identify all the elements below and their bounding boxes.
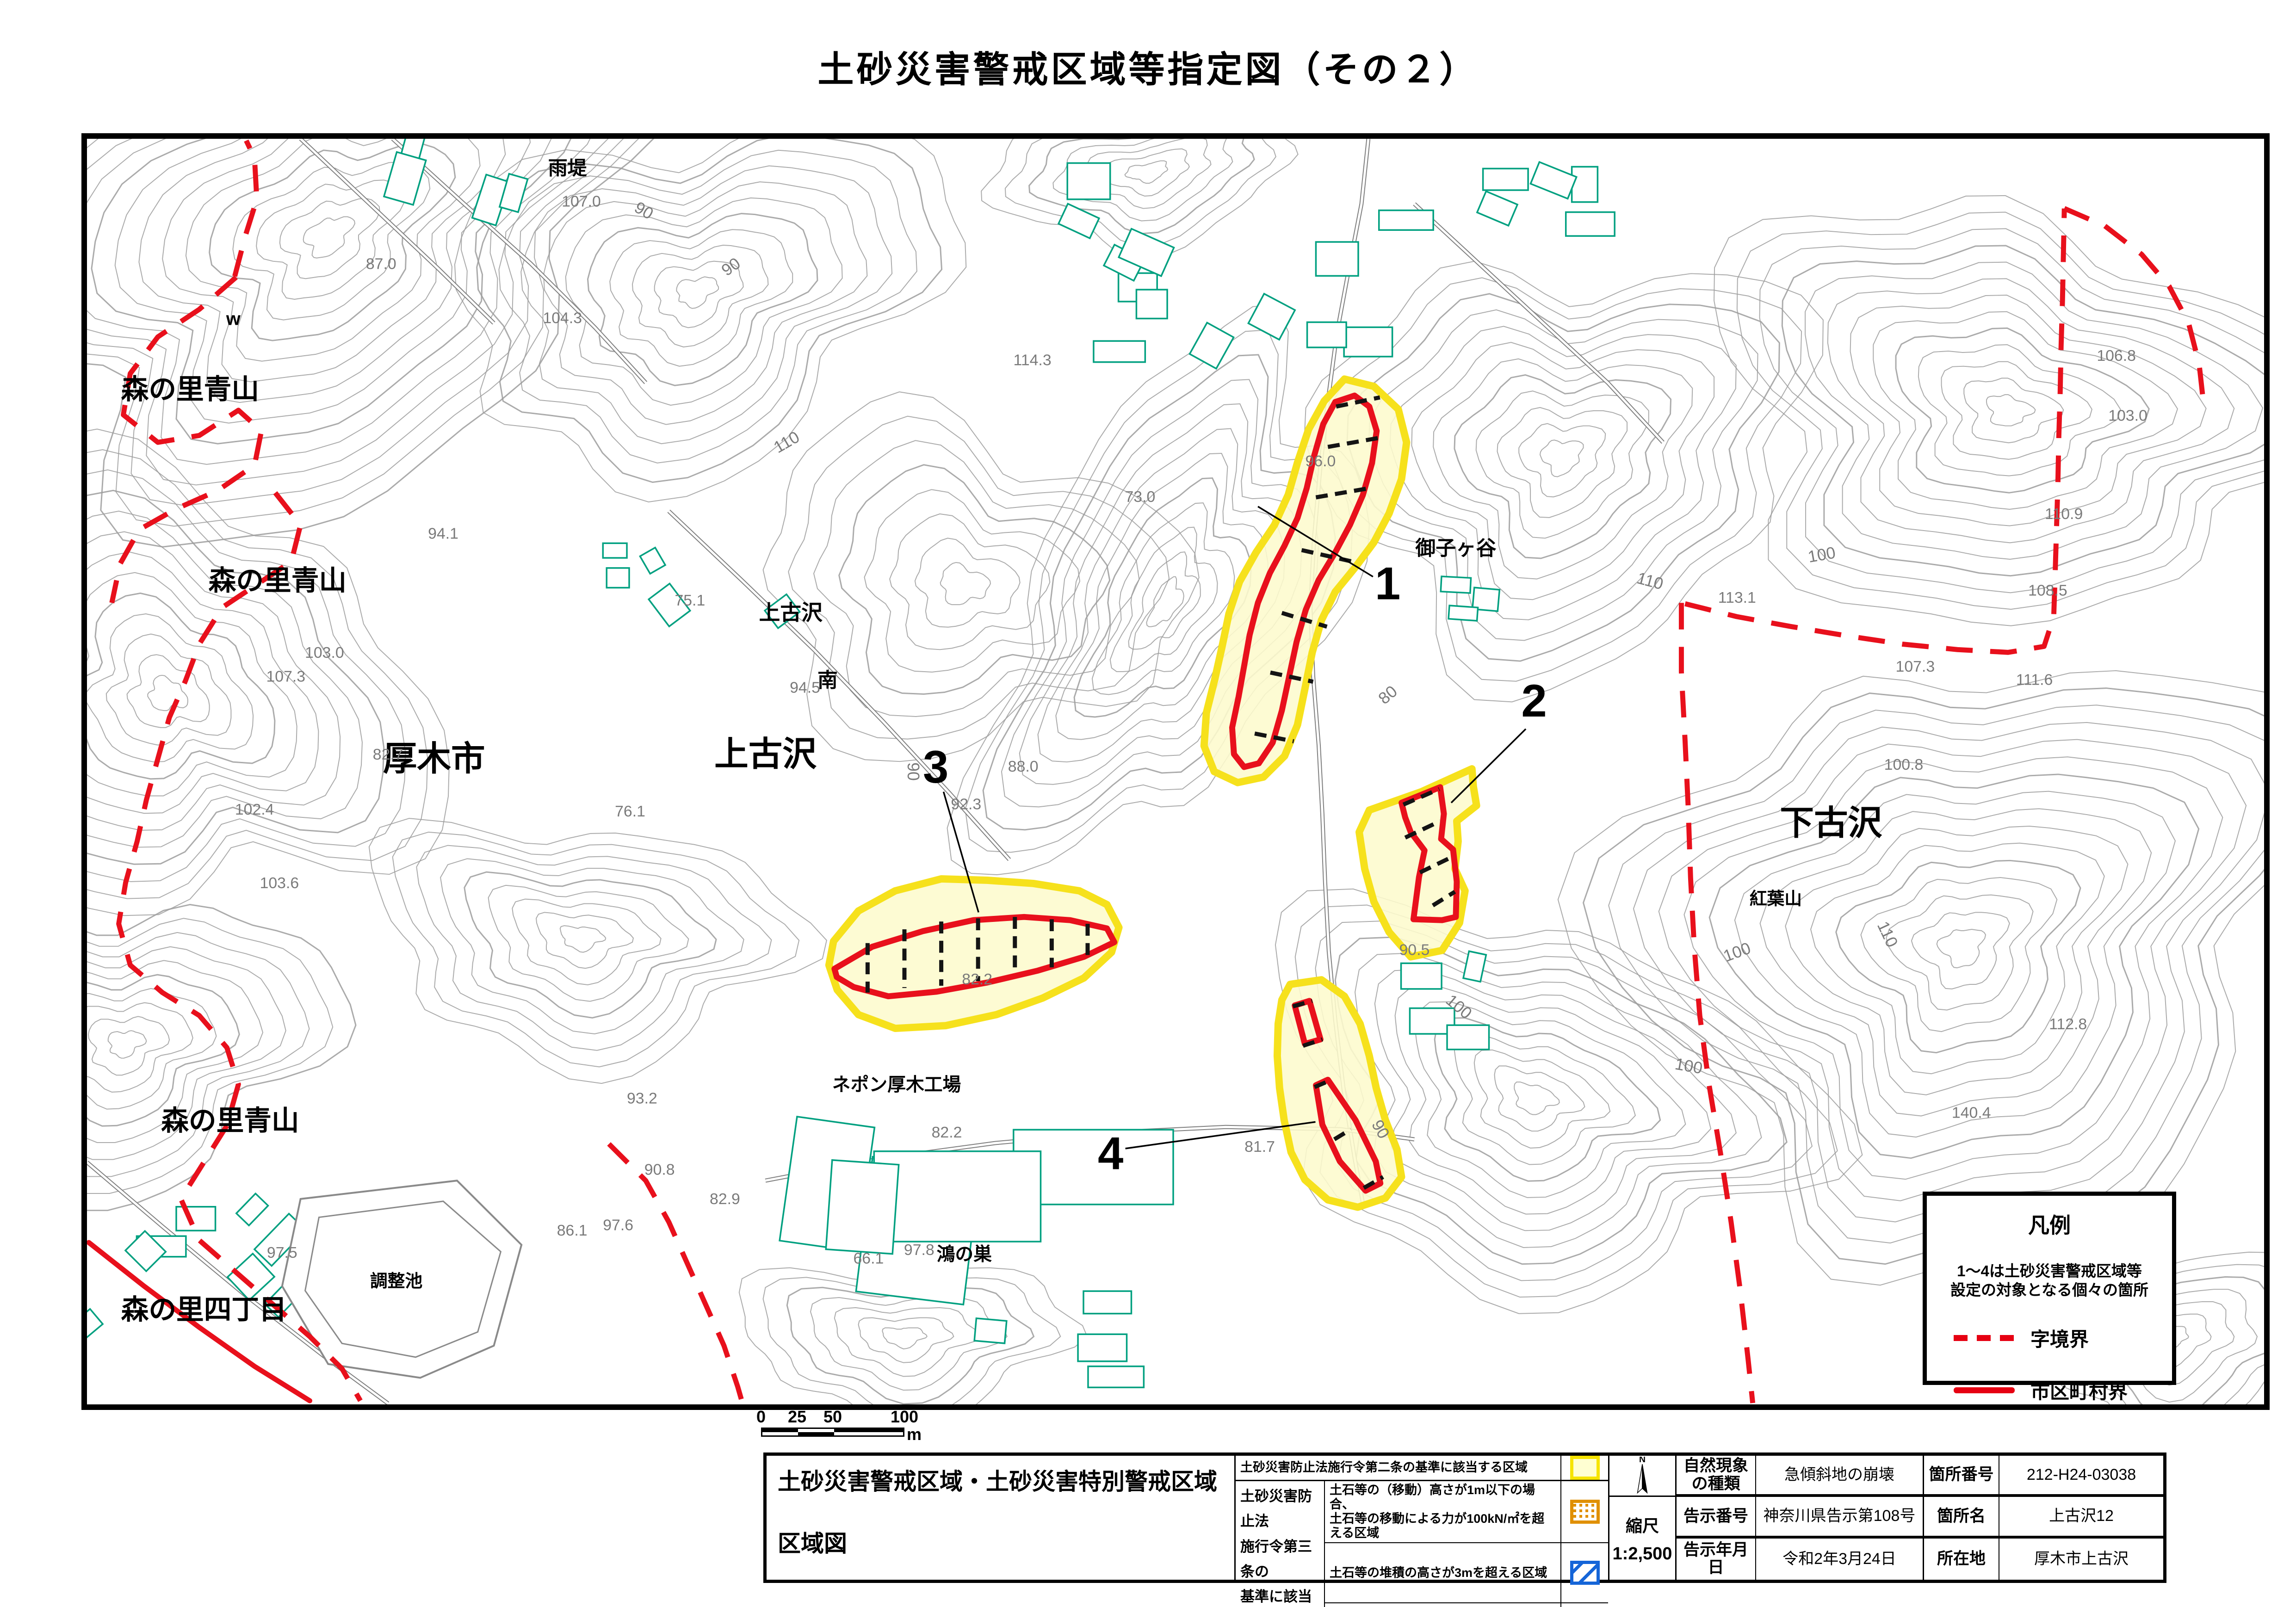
elevation-label: 113.1 [1718, 589, 1756, 606]
elevation-label: 75.1 [675, 592, 705, 609]
contour-line [1964, 378, 2063, 443]
building [1477, 192, 1517, 226]
category-row-debris-height: 土石等の堆積の高さが3mを超える区域 [1325, 1543, 1608, 1603]
building [1136, 290, 1167, 318]
contour-line [256, 180, 405, 299]
contour-line [512, 899, 661, 985]
contour-line [1836, 860, 2080, 1052]
building [826, 1160, 898, 1254]
contour-line [1454, 375, 1671, 559]
detail-label: 告示番号 [1677, 1497, 1756, 1538]
legend-item-municipal-boundary: 市区町村界 [1954, 1376, 2172, 1404]
elevation-label: 107.0 [562, 193, 601, 210]
category-text: それ以外の区域 [1325, 1603, 1560, 1607]
swatch-cell [1560, 1543, 1608, 1602]
elevation-label: 110.9 [2045, 505, 2083, 523]
elevation-label: 82.7 [373, 746, 403, 763]
legend-item-label: 字境界 [2030, 1324, 2089, 1352]
category-text: 土石等の（移動）高さが1m以下の場合、 土石等の移動による力が100kN/㎡を超… [1325, 1481, 1560, 1542]
zone-category-table: 土砂災害防止法施行令第二条の基準に該当する区域 土砂災害防止法 施行令第三条の … [1236, 1456, 1609, 1580]
detail-value: 上古沢12 [1999, 1497, 2163, 1538]
building [640, 548, 665, 574]
contour-line [1474, 1050, 1610, 1148]
contour-line [890, 514, 1050, 649]
contour-line [489, 885, 689, 1001]
contour-line [87, 470, 405, 882]
contour-line [858, 1318, 953, 1363]
detail-value: 厚木市上古沢 [1999, 1539, 2163, 1580]
aza-boundary-dashed [2064, 209, 2203, 406]
place-label: 森の里青山 [161, 1105, 299, 1136]
category-row-other: それ以外の区域 [1325, 1603, 1608, 1607]
contour-line [139, 139, 530, 402]
contour-line [1514, 1082, 1560, 1114]
category-article3-label: 土砂災害防止法 施行令第三条の 基準に該当する 区域 [1236, 1481, 1325, 1607]
elevation-label: 106.8 [2097, 347, 2136, 365]
elevation-label: 94.5 [790, 679, 820, 697]
swatch-cell [1560, 1481, 1608, 1542]
elevation-label: 73.0 [1125, 488, 1155, 506]
contour-line [1987, 395, 2035, 426]
contour-line [1101, 149, 1189, 196]
debris-height-swatch-icon [1570, 1561, 1600, 1585]
map-sheet-title-cell: 土砂災害警戒区域・土砂災害特別警戒区域 区域図 [767, 1456, 1236, 1580]
scale-label: 縮尺 [1626, 1513, 1659, 1537]
contour-line [1125, 161, 1168, 184]
page-title: 土砂災害警戒区域等指定図（その２） [0, 41, 2296, 93]
contour-line [88, 1016, 169, 1075]
detail-value: 急傾斜地の崩壊 [1756, 1456, 1924, 1497]
elevation-label: 103.0 [305, 644, 344, 661]
contour-line [455, 139, 966, 502]
legend-item-aza-boundary: 字境界 [1954, 1324, 2172, 1352]
contour-line [1129, 552, 1201, 649]
scale-bar: 0 25 50 100 m [749, 1407, 989, 1451]
contour-elevation-label: 80 [1375, 682, 1401, 708]
place-label: 上古沢 [714, 735, 817, 773]
contour-line [1519, 424, 1605, 497]
place-label: 下古沢 [1780, 803, 1882, 842]
place-label: 紅葉山 [1750, 889, 1802, 909]
category-text: 土石等の堆積の高さが3mを超える区域 [1325, 1543, 1560, 1602]
building [606, 568, 629, 588]
contour-line [763, 392, 1199, 761]
zone-leader-line [1451, 729, 1526, 803]
contour-line [1497, 408, 1627, 518]
contour-line [1714, 196, 2264, 626]
contour-line [941, 562, 990, 605]
solid-red-line-icon [1954, 1387, 2015, 1393]
elevation-label: 108.5 [2028, 581, 2067, 599]
hazard-zone-2: 2 [1359, 675, 1547, 957]
building [1447, 1025, 1489, 1050]
elevation-label: 112.8 [2049, 1015, 2087, 1033]
building [1441, 576, 1471, 593]
elevation-label: 111.6 [2016, 671, 2053, 689]
zone-number-label: 1 [1375, 558, 1400, 609]
warning-area-swatch-icon [1570, 1456, 1600, 1480]
contour-line [544, 182, 867, 424]
elevation-label: 97.6 [603, 1216, 633, 1234]
contour-line [1355, 953, 1762, 1248]
elevation-label: 97.5 [267, 1244, 297, 1261]
contour-line [87, 1003, 193, 1092]
building [1530, 162, 1576, 198]
building [1067, 163, 1110, 199]
building [1078, 1334, 1126, 1361]
contour-line [416, 846, 771, 1051]
road-center [1414, 204, 1663, 442]
page: 土砂災害警戒区域等指定図（その２） 1234森の里青山森の里青山森の里青山森の里… [0, 0, 2296, 1607]
contour-line [1540, 440, 1584, 476]
elevation-label: 103.0 [2108, 407, 2147, 425]
aza-boundary-dashed [1685, 209, 2064, 653]
north-label: N [1639, 1457, 1646, 1465]
elevation-label: 86.1 [557, 1222, 588, 1239]
contour-line [864, 489, 1080, 672]
contour-line [536, 912, 633, 968]
place-label: w [226, 309, 241, 329]
contour-line [1735, 791, 2175, 1137]
place-label: ネポン厚木工場 [832, 1075, 961, 1095]
contour-line [632, 245, 768, 347]
elevation-label: 82.2 [932, 1124, 962, 1141]
contour-line [1805, 262, 2263, 559]
scale-tick-100: 100 [891, 1407, 918, 1427]
contour-elevation-label: 90 [904, 762, 922, 781]
elevation-label: 81.7 [1244, 1138, 1275, 1156]
place-label: 森の里青山 [121, 374, 259, 405]
legend-note: 1～4は土砂災害警戒区域等 設定の対象となる個々の箇所 [1927, 1261, 2172, 1300]
map-sheet-title-line1: 土砂災害警戒区域・土砂災害特別警戒区域 [778, 1463, 1223, 1496]
elevation-label: 87.0 [366, 255, 396, 273]
detail-label: 告示年月日 [1677, 1539, 1756, 1580]
elevation-label: 97.8 [904, 1241, 934, 1259]
elevation-label: 104.3 [543, 309, 582, 327]
contour-line [464, 872, 716, 1018]
elevation-label: 100.8 [1884, 756, 1924, 773]
building [1190, 323, 1234, 369]
elevation-label: 107.3 [266, 668, 305, 686]
elevation-label: 82.9 [710, 1190, 740, 1208]
contour-line [1861, 878, 2057, 1032]
warning-area-polygon [829, 879, 1119, 1028]
map-frame: 1234森の里青山森の里青山森の里青山森の里四丁目厚木市上古沢上古沢下古沢御子ヶ… [81, 133, 2270, 1410]
place-label: 森の里青山 [209, 565, 347, 596]
contour-line [280, 198, 380, 278]
contour-line [915, 538, 1020, 627]
contour-elevation-label: 100 [1721, 939, 1753, 965]
contour-line [1937, 929, 1986, 968]
building [1058, 204, 1099, 238]
swatch-cell [1560, 1603, 1608, 1607]
scale-tick-50: 50 [823, 1407, 842, 1427]
zone-number-label: 4 [1098, 1128, 1123, 1180]
building [1088, 1366, 1144, 1388]
legend-box: 凡例 1～4は土砂災害警戒区域等 設定の対象となる個々の箇所 字境界 市区町村界 [1923, 1192, 2176, 1385]
north-arrow-cell: N [1609, 1456, 1675, 1497]
detail-label: 所在地 [1924, 1539, 1999, 1580]
place-label: 調整池 [370, 1271, 422, 1291]
swatch-cell [1560, 1456, 1608, 1480]
building [87, 1309, 103, 1339]
elevation-label: 140.4 [1952, 1104, 1991, 1121]
building [603, 543, 627, 558]
elevation-label: 114.3 [1014, 352, 1052, 369]
place-label: 鴻の巣 [937, 1244, 992, 1265]
aza-boundary-dashed [1681, 603, 1752, 1403]
contour-line [87, 614, 253, 762]
building [1344, 327, 1392, 356]
building [1483, 168, 1529, 190]
elevation-label: 76.1 [615, 803, 645, 820]
place-label: 雨堤 [548, 157, 587, 179]
aza-boundary-dashed [235, 141, 257, 276]
building [1401, 963, 1442, 989]
contour-line [1918, 345, 2121, 476]
elevation-label: 96.0 [1305, 452, 1336, 470]
scale-tick-25: 25 [788, 1407, 806, 1427]
contour-line [882, 1328, 927, 1349]
contour-line [87, 989, 217, 1109]
elevation-label: 93.2 [627, 1090, 657, 1107]
building [384, 152, 426, 205]
contour-line [1912, 912, 2010, 989]
contour-line [1609, 705, 2264, 1243]
building [1448, 606, 1478, 621]
building [974, 1318, 1007, 1343]
scale-value: 1:2,500 [1613, 1544, 1672, 1564]
debris-force-swatch-icon [1570, 1500, 1600, 1524]
designation-details-table: 自然現象の種類 急傾斜地の崩壊 箇所番号 212-H24-03038 告示番号 … [1677, 1456, 2163, 1580]
zone-number-label: 3 [923, 742, 948, 793]
contour-line [87, 511, 362, 847]
contour-line [369, 818, 827, 1083]
contour-elevation-label: 110 [1635, 569, 1665, 593]
place-label: 南 [817, 669, 838, 692]
detail-label: 自然現象の種類 [1677, 1456, 1756, 1497]
category-article2-text: 土砂災害防止法施行令第二条の基準に該当する区域 [1236, 1456, 1560, 1480]
scale-bar-graphic [761, 1428, 904, 1437]
contour-line [788, 416, 1169, 739]
contour-line [1886, 895, 2033, 1010]
contour-line [106, 634, 231, 745]
north-scale-column: N 縮尺 1:2,500 [1609, 1456, 1677, 1580]
building [1307, 322, 1347, 348]
contour-elevation-label: 100 [1807, 543, 1837, 566]
contour-line [1828, 278, 2234, 543]
legend-item-label: 市区町村界 [2030, 1376, 2128, 1404]
building [1572, 167, 1598, 202]
elevation-label: 90.8 [644, 1161, 675, 1178]
contour-line [303, 217, 355, 258]
aza-boundary-dashed [609, 1144, 743, 1403]
contour-elevation-label: 90 [631, 198, 657, 223]
contour-elevation-label: 100 [1674, 1055, 1704, 1078]
building [1463, 951, 1486, 982]
building [1566, 212, 1615, 236]
category-row-article2: 土砂災害防止法施行令第二条の基準に該当する区域 [1236, 1456, 1608, 1481]
contour-line [1369, 310, 1758, 641]
category-row-debris-force: 土石等の（移動）高さが1m以下の場合、 土石等の移動による力が100kN/㎡を超… [1325, 1481, 1608, 1543]
legend-title: 凡例 [1927, 1209, 2172, 1239]
building [1083, 1291, 1131, 1314]
contour-line [148, 675, 188, 711]
zone-number-label: 2 [1521, 675, 1547, 727]
contour-line [1584, 688, 2264, 1264]
scale-tick-0: 0 [756, 1407, 766, 1427]
elevation-label: 88.0 [1008, 758, 1039, 775]
contour-line [560, 926, 606, 952]
building [176, 1207, 216, 1231]
contour-line [1347, 294, 1779, 661]
detail-label: 箇所名 [1924, 1497, 1999, 1538]
contour-line [87, 933, 309, 1176]
contour-line [108, 1031, 147, 1058]
detail-value: 212-H24-03038 [1999, 1456, 2163, 1497]
north-arrow-icon: N [1627, 1457, 1658, 1495]
contour-line [1659, 740, 2246, 1201]
detail-value: 令和2年3月24日 [1756, 1539, 1924, 1580]
contour-line [835, 1308, 980, 1377]
building [1379, 210, 1433, 230]
info-table: 土砂災害警戒区域・土砂災害特別警戒区域 区域図 土砂災害防止法施行令第二条の基準… [763, 1452, 2166, 1583]
elevation-label: 102.4 [235, 801, 274, 818]
detail-value: 神奈川県告示第108号 [1756, 1497, 1924, 1538]
contour-line [814, 440, 1139, 717]
building [1316, 242, 1358, 276]
contour-line [1760, 809, 2152, 1116]
dashed-red-line-icon [1954, 1335, 2015, 1341]
scale-cell: 縮尺 1:2,500 [1609, 1497, 1675, 1580]
building [1094, 341, 1145, 362]
scale-unit: m [907, 1425, 922, 1444]
place-label: 上古沢 [759, 601, 823, 624]
elevation-label: 82.2 [962, 970, 992, 988]
contour-line [162, 139, 505, 382]
contour-line [1146, 577, 1184, 627]
contour-line [1760, 229, 2264, 593]
map-sheet-title-line2: 区域図 [778, 1525, 1223, 1558]
building [236, 1193, 268, 1225]
elevation-label: 90.5 [1399, 941, 1430, 959]
elevation-label: 103.6 [260, 874, 299, 892]
place-label: 森の里四丁目 [121, 1294, 287, 1325]
elevation-label: 66.1 [853, 1250, 884, 1267]
detail-label: 箇所番号 [1924, 1456, 1999, 1497]
elevation-label: 94.1 [428, 525, 458, 542]
elevation-label: 92.3 [951, 795, 981, 813]
contour-line [1005, 139, 1276, 246]
place-label: 御子ヶ谷 [1415, 537, 1496, 560]
contour-line [677, 277, 719, 308]
elevation-label: 107.3 [1896, 658, 1935, 675]
contour-elevation-label: 110 [771, 427, 803, 457]
